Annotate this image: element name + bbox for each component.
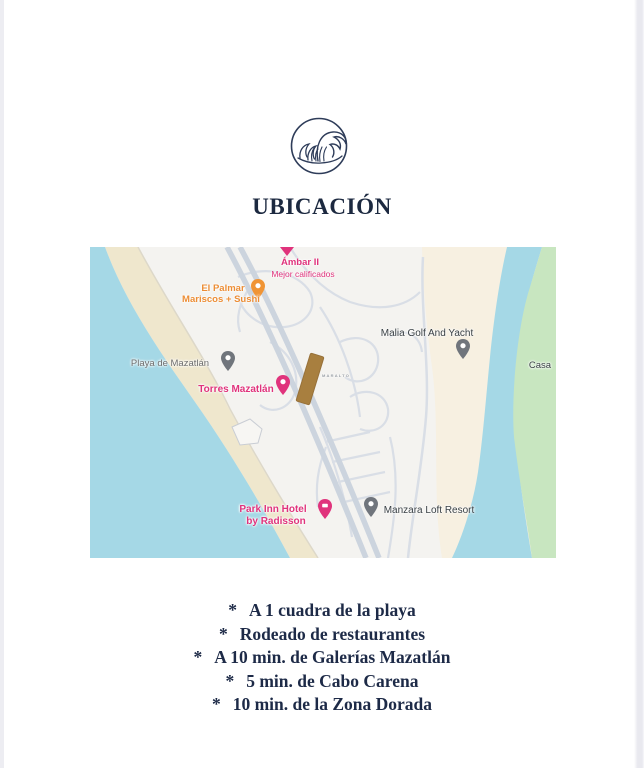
ambar-pin-icon (280, 247, 294, 256)
bullet-marker: * (212, 693, 221, 717)
beach-pin-icon (221, 351, 235, 371)
bullet-text: A 1 cuadra de la playa (249, 599, 416, 623)
bullet-text: A 10 min. de Galerías Mazatlán (214, 646, 450, 670)
parkinn-hotel-pin-icon (318, 499, 332, 519)
golf-pin-icon (456, 339, 470, 359)
list-item: * A 10 min. de Galerías Mazatlán (0, 646, 644, 670)
manzara-pin-icon (364, 497, 378, 517)
map-label-parkinn-sub: by Radisson (246, 516, 305, 527)
map-label-palmar-sub: Mariscos + Sushi (182, 295, 260, 305)
map-label-property: MARALTO (322, 374, 350, 378)
wave-logo-icon (289, 116, 349, 176)
bullet-text: Rodeado de restaurantes (240, 623, 425, 647)
list-item: * 10 min. de la Zona Dorada (0, 693, 644, 717)
map-label-casa: Casa (529, 361, 551, 371)
map-label-playa: Playa de Mazatlán (131, 359, 209, 369)
map-label-ambar: Ámbar II (281, 258, 319, 268)
bullet-text: 5 min. de Cabo Carena (246, 670, 418, 694)
bullet-marker: * (194, 646, 203, 670)
map-label-palmar: El Palmar (201, 284, 244, 294)
bullet-text: 10 min. de la Zona Dorada (233, 693, 432, 717)
list-item: * A 1 cuadra de la playa (0, 599, 644, 623)
torres-hotel-pin-icon (276, 375, 290, 395)
map-label-ambar-sub: Mejor calificados (271, 270, 334, 279)
location-flyer: UBICACIÓN (0, 0, 644, 768)
bullet-marker: * (219, 623, 228, 647)
bullet-marker: * (225, 670, 234, 694)
map-label-torres: Torres Mazatlán (198, 384, 273, 395)
location-map-image: Ámbar II Mejor calificados El Palmar Mar… (90, 247, 556, 558)
map-label-parkinn: Park Inn Hotel (239, 504, 306, 515)
location-highlights: * A 1 cuadra de la playa * Rodeado de re… (0, 599, 644, 717)
list-item: * 5 min. de Cabo Carena (0, 670, 644, 694)
map-label-manzara: Manzara Loft Resort (384, 505, 475, 516)
list-item: * Rodeado de restaurantes (0, 623, 644, 647)
map-label-malia: Malia Golf And Yacht (381, 328, 473, 339)
page-title: UBICACIÓN (0, 194, 644, 220)
bullet-marker: * (228, 599, 237, 623)
